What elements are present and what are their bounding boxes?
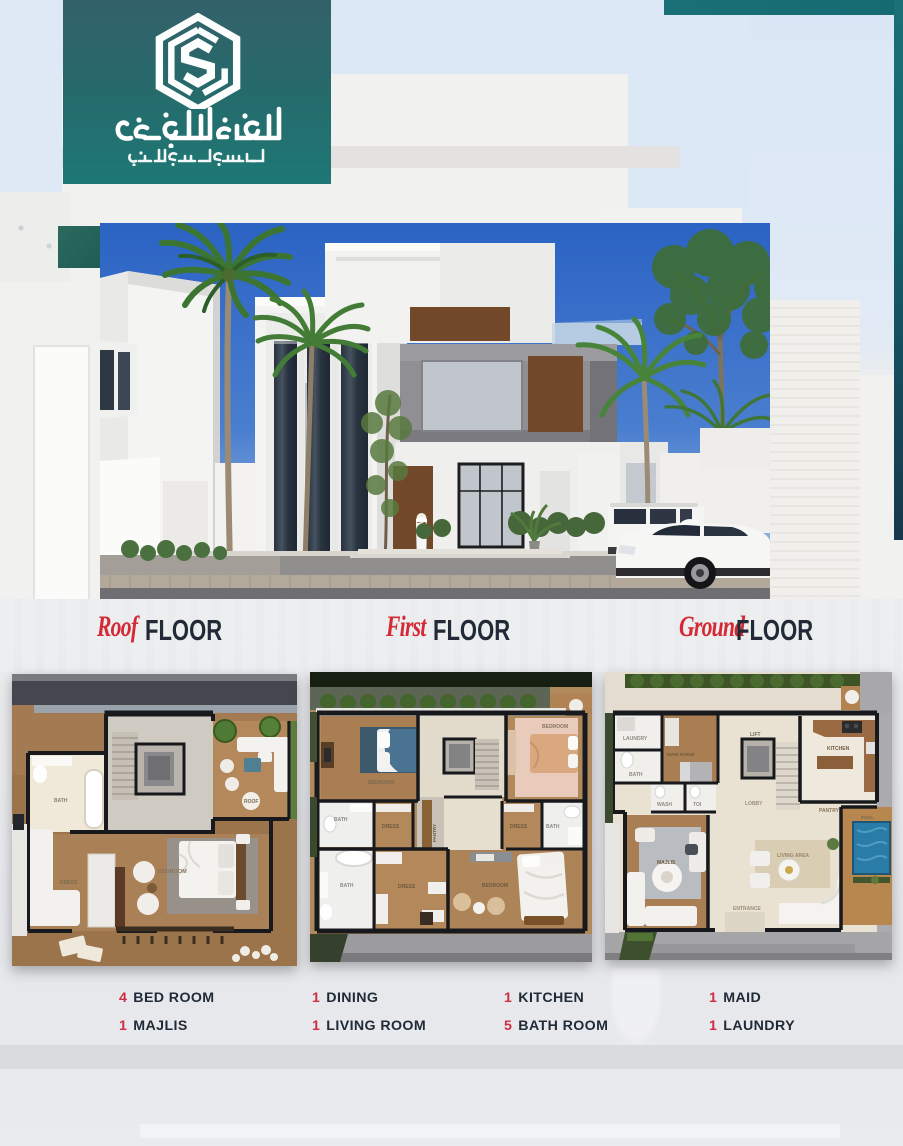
svg-text:DRESS: DRESS <box>510 824 528 830</box>
svg-text:LOBBY: LOBBY <box>745 801 763 807</box>
svg-text:PANTRY: PANTRY <box>819 808 840 814</box>
svg-text:BEDROOM: BEDROOM <box>542 724 568 730</box>
svg-text:DRESS: DRESS <box>60 880 78 886</box>
svg-text:BATH: BATH <box>629 772 643 778</box>
svg-text:BEDROOM: BEDROOM <box>482 883 508 889</box>
svg-text:LIVING AREA: LIVING AREA <box>777 853 809 859</box>
svg-text:MAJLIS: MAJLIS <box>657 860 676 866</box>
svg-text:PANTRY: PANTRY <box>432 824 437 842</box>
svg-text:DRESS: DRESS <box>382 824 400 830</box>
svg-text:BATH: BATH <box>334 817 348 823</box>
svg-text:BATH: BATH <box>546 824 560 830</box>
svg-text:ENTRANCE: ENTRANCE <box>733 906 761 912</box>
svg-text:LAUNDRY: LAUNDRY <box>623 736 648 742</box>
svg-text:BATH: BATH <box>54 798 68 804</box>
svg-text:BEDROOM: BEDROOM <box>368 780 394 786</box>
svg-text:BATH: BATH <box>340 883 354 889</box>
svg-text:KITCHEN: KITCHEN <box>827 746 850 752</box>
svg-text:LIFT: LIFT <box>750 732 761 738</box>
svg-text:WASH: WASH <box>657 802 672 808</box>
svg-text:TOI: TOI <box>693 802 702 808</box>
svg-text:POOL: POOL <box>861 815 874 820</box>
svg-text:DRESS: DRESS <box>398 884 416 890</box>
svg-text:ROOF: ROOF <box>244 799 258 805</box>
svg-text:MAID ROOM: MAID ROOM <box>667 752 694 757</box>
svg-text:BEDROOM: BEDROOM <box>158 869 187 875</box>
